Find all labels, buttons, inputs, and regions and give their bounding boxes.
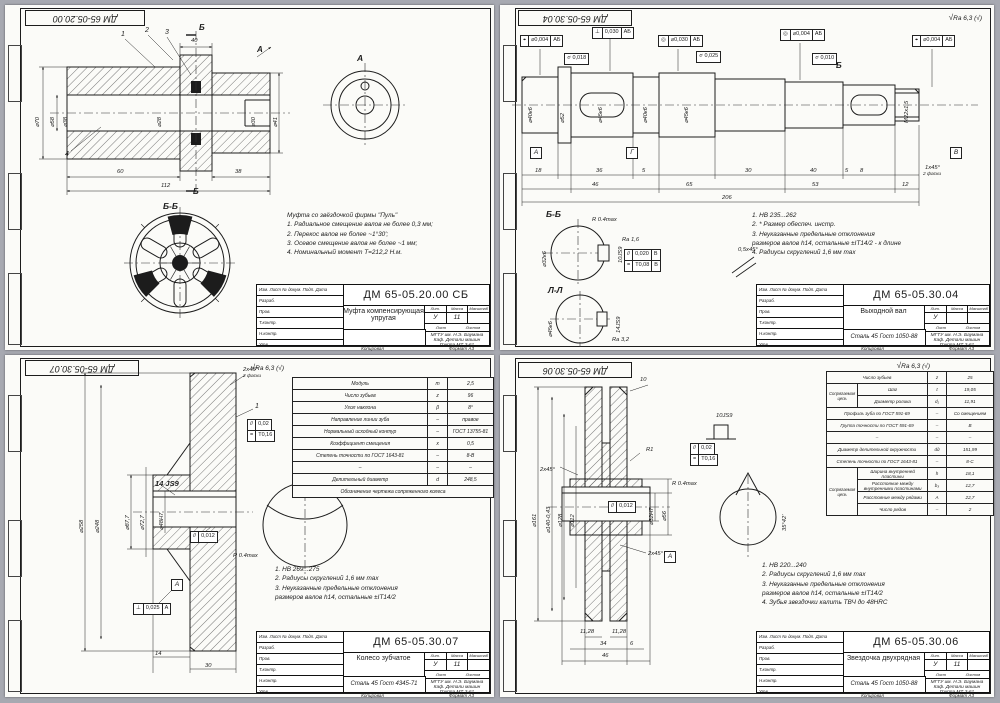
datum-v: В (950, 147, 962, 159)
item-callout: 3 (165, 29, 169, 36)
section-bb-title: Б-Б (163, 201, 178, 211)
dim-label: 40 (191, 38, 197, 44)
dim-label: ⌀32Н7 (649, 508, 655, 525)
tolerance-frame: ◎⌀0,004АБ (780, 29, 825, 41)
gear-parameters-table: Модульm2,5 Число зубьевz96 Угол наклонаβ… (292, 377, 494, 498)
dim-label: 6 (630, 641, 633, 647)
dim-label: R 0.4max (592, 217, 617, 223)
dim-label: 40 (810, 168, 816, 174)
tolerance-frame: =Т0,08В (624, 260, 661, 272)
dim-label: 12 (902, 182, 908, 188)
mass-value: 11 (447, 313, 469, 323)
dim-label: ⌀48Н7 (159, 513, 165, 530)
dim-label: 14JS9 (616, 317, 622, 333)
title-block-right: Лит.МассаМасштаб У11 ЛистЛистов МГТУ им.… (925, 652, 989, 692)
dim-label: 2 фаски (923, 172, 941, 177)
title-block: Изм. Лист № докум. Подп. Дата Разраб. Пр… (256, 284, 490, 346)
cut-label: Б (836, 61, 842, 70)
datum-a: А (664, 551, 676, 563)
tolerance-frame: =Т0,16 (690, 454, 718, 466)
dim-label: ⌀56 (662, 511, 668, 521)
dim-label: R 0.4max (233, 553, 258, 559)
datum-a: А (171, 579, 183, 591)
dim-label: Ra 3,2 (612, 337, 629, 343)
sheet-output-shaft: ДМ 65-05.30.04 √Ra 6,3 (√) (500, 5, 994, 350)
dim-label: 46 (602, 653, 608, 659)
dim-label: ⌀87,7 (125, 515, 131, 530)
scale-value (468, 660, 489, 670)
tolerance-frame: //0,012 (608, 501, 636, 513)
part-name: Выходной вал (843, 305, 925, 329)
tolerance-frame: ⌭ 0,010 (812, 53, 837, 65)
material: Сталь 45 Гост 4345-71 (343, 676, 426, 693)
tolerance-frame: ⊥0,025А (133, 603, 171, 615)
dim-label: ⌀28 (157, 117, 163, 127)
datum-g: Г (626, 147, 638, 159)
dim-label: ⌀41 (273, 117, 279, 127)
mass-value: 11 (947, 660, 969, 670)
tolerance-frame: ⌭ 0,018 (564, 53, 589, 65)
doc-number: ДМ 65-05.30.04 (843, 285, 989, 306)
dim-label: 60 (117, 169, 123, 175)
dim-label: М22х1,5 (904, 101, 910, 123)
dim-label: ⌀45к6 (548, 321, 554, 337)
sprocket-section-view (562, 387, 650, 621)
item-callout: 2 (145, 27, 149, 34)
technical-notes: Муфта со звёздочкой фирмы "Пуль" 1. Ради… (287, 211, 433, 257)
dim-label: 14 JS9 (155, 479, 179, 488)
lit-value: У (425, 313, 447, 323)
dim-label: 10 (640, 377, 646, 383)
tolerance-frame: ⌖⌀0,004АБ (520, 35, 563, 47)
dim-label: ⌀40к6 (643, 107, 649, 123)
view-a-title: А (357, 53, 363, 63)
dim-label: 10JS9 (716, 413, 732, 419)
dim-label: 65 (686, 182, 692, 188)
dim-label: R1 (646, 447, 653, 453)
tolerance-frame: =Т0,16 (247, 430, 275, 442)
copied-label: Копировал (861, 693, 884, 698)
dim-label: ⌀248 (95, 520, 101, 533)
title-block-right: Лит.МассаМасштаб У11 ЛистЛистов МГТУ им.… (425, 652, 489, 692)
revision-table: Изм. Лист № докум. Подп. Дата Разраб. Пр… (257, 285, 344, 345)
dim-label: 2 фаски (243, 374, 261, 379)
dim-label: ⌀161 (532, 514, 538, 527)
dim-label: R 0.4max (672, 481, 697, 487)
dim-label: ⌀72,7 (140, 515, 146, 530)
technical-notes: 1. НВ 235...262 2. * Размер обеспеч. инс… (752, 211, 901, 257)
dim-label: ⌀30 (251, 117, 257, 127)
dim-label: 14 (155, 651, 161, 657)
copied-label: Копировал (361, 693, 384, 698)
format-label: Формат А3 (449, 346, 474, 351)
dim-label: 30 (745, 168, 751, 174)
scale-value (968, 313, 989, 323)
technical-notes: 1. НВ 220...240 2. Радиусы скруглений 1,… (762, 561, 887, 607)
dim-label: 2х45° (243, 367, 258, 373)
section-ll-title: Л-Л (548, 285, 563, 295)
sheet-sprocket: ДМ 65-05.30.06 √Ra 6,3 (√) (500, 355, 994, 697)
tolerance-frame: ⊥0,030АБ (592, 27, 634, 39)
dim-label: 53 (812, 182, 818, 188)
technical-notes: 1. НВ 269...275 2. Радиусы скруглений 1,… (275, 565, 398, 602)
lit-value: У (425, 660, 447, 670)
dim-label: 5 (845, 168, 848, 174)
dim-label: 35°42' (782, 515, 788, 531)
dim-label: 38 (235, 169, 241, 175)
dim-label: 11,28 (612, 629, 626, 635)
item-callout: 1 (121, 31, 125, 38)
scale-value (468, 313, 489, 323)
dim-label: 36 (596, 168, 602, 174)
dim-label: ⌀38 (63, 117, 69, 127)
dim-label: 112 (161, 183, 170, 189)
dim-label: 1х45° (925, 165, 940, 171)
sheet-gear-wheel: ДМ 65-05.30.07 √Ra 6,3 (√) (5, 355, 494, 697)
keyway-detail-view (706, 425, 736, 439)
mass-value: 11 (447, 660, 469, 670)
copied-label: Копировал (861, 346, 884, 351)
tolerance-frame: ◎⌀0,030АБ (658, 35, 703, 47)
dim-label: 46 (592, 182, 598, 188)
format-label: Формат А3 (949, 346, 974, 351)
revision-table: Изм. Лист № докум. Подп. Дата Разраб. Пр… (257, 632, 344, 692)
dim-label: ⌀140-0,43 (546, 507, 552, 533)
doc-number: ДМ 65-05.30.06 (843, 632, 989, 653)
dim-label: ⌀128 (558, 514, 564, 527)
scale-value (968, 660, 989, 670)
dim-label: 34 (600, 641, 606, 647)
datum-a: А (530, 147, 542, 159)
sprocket-parameters-table: Число зубьевz25 Сопрягаемая цепьШагt19,0… (826, 371, 994, 516)
dim-label: 30 (205, 663, 211, 669)
tolerance-frame: //0,012 (190, 531, 218, 543)
format-label: Формат А3 (949, 693, 974, 698)
lit-value: У (925, 313, 947, 323)
dim-label: ⌀45к6 (684, 107, 690, 123)
part-name: Муфта компенсирующая упругая (343, 305, 425, 329)
dim-label: ⌀58 (50, 117, 56, 127)
copied-label: Копировал (361, 346, 384, 351)
dim-label: ⌀112 (570, 514, 576, 527)
title-block: Изм. Лист № докум. Подп. Дата Разраб. Пр… (256, 631, 490, 693)
revision-table: Изм. Лист № докум. Подп. Дата Разраб. Пр… (757, 285, 844, 345)
item-callout: 1 (255, 403, 259, 410)
title-block: Изм. Лист № докум. Подп. Дата Разраб. Пр… (756, 631, 990, 693)
view-arrow-label: А (257, 45, 263, 54)
doc-number: ДМ 65-05.30.07 (343, 632, 489, 653)
chamfer-detail-view (732, 257, 756, 277)
part-name: Звездочка двухрядная (843, 652, 925, 676)
dim-label: ⌀258 (79, 520, 85, 533)
dim-label: ⌀32к6 (542, 251, 548, 267)
material: Сталь 45 Гост 1050-88 (843, 676, 926, 693)
part-name: Колесо зубчатое (343, 652, 425, 676)
dim-label: 2х45° (648, 551, 663, 557)
sheet-coupling: ДМ 65-05.20.00 (5, 5, 494, 350)
dim-label: ⌀45к6 (598, 107, 604, 123)
material (343, 329, 426, 346)
material: Сталь 45 Гост 1050-88 (843, 329, 926, 346)
lit-value: У (925, 660, 947, 670)
tolerance-frame: ⌭ 0,025 (696, 51, 721, 63)
dim-label: ⌀52 (560, 113, 566, 123)
title-block-right: Лит.МассаМасштаб У ЛистЛистов МГТУ им. Н… (925, 305, 989, 345)
drawing-set-page: ДМ 65-05.20.00 (0, 0, 1000, 703)
cut-label-bottom: Б (193, 187, 199, 196)
dim-label: Ra 1,6 (622, 237, 639, 243)
revision-table: Изм. Лист № докум. Подп. Дата Разраб. Пр… (757, 632, 844, 692)
dim-label: 11,28 (580, 629, 594, 635)
cut-label-top: Б (199, 23, 205, 32)
dim-label: ⌀40к6 (528, 107, 534, 123)
mass-value (947, 313, 969, 323)
title-block: Изм. Лист № докум. Подп. Дата Разраб. Пр… (756, 284, 990, 346)
format-label: Формат А3 (449, 693, 474, 698)
dim-label: 5 (642, 168, 645, 174)
title-block-right: Лит.МассаМасштаб У11 ЛистЛистов МГТУ им.… (425, 305, 489, 345)
dim-label: 18 (535, 168, 541, 174)
dim-label: ⌀70 (35, 117, 41, 127)
dim-label: 206 (722, 195, 732, 201)
dim-label: 8 (860, 168, 863, 174)
dim-label: 2х45° (540, 467, 555, 473)
item-callout: 4 (65, 151, 69, 158)
section-bb-title: Б-Б (546, 209, 561, 219)
doc-number: ДМ 65-05.20.00 СБ (343, 285, 489, 306)
tolerance-frame: ⌖⌀0,004АБ (912, 35, 955, 47)
